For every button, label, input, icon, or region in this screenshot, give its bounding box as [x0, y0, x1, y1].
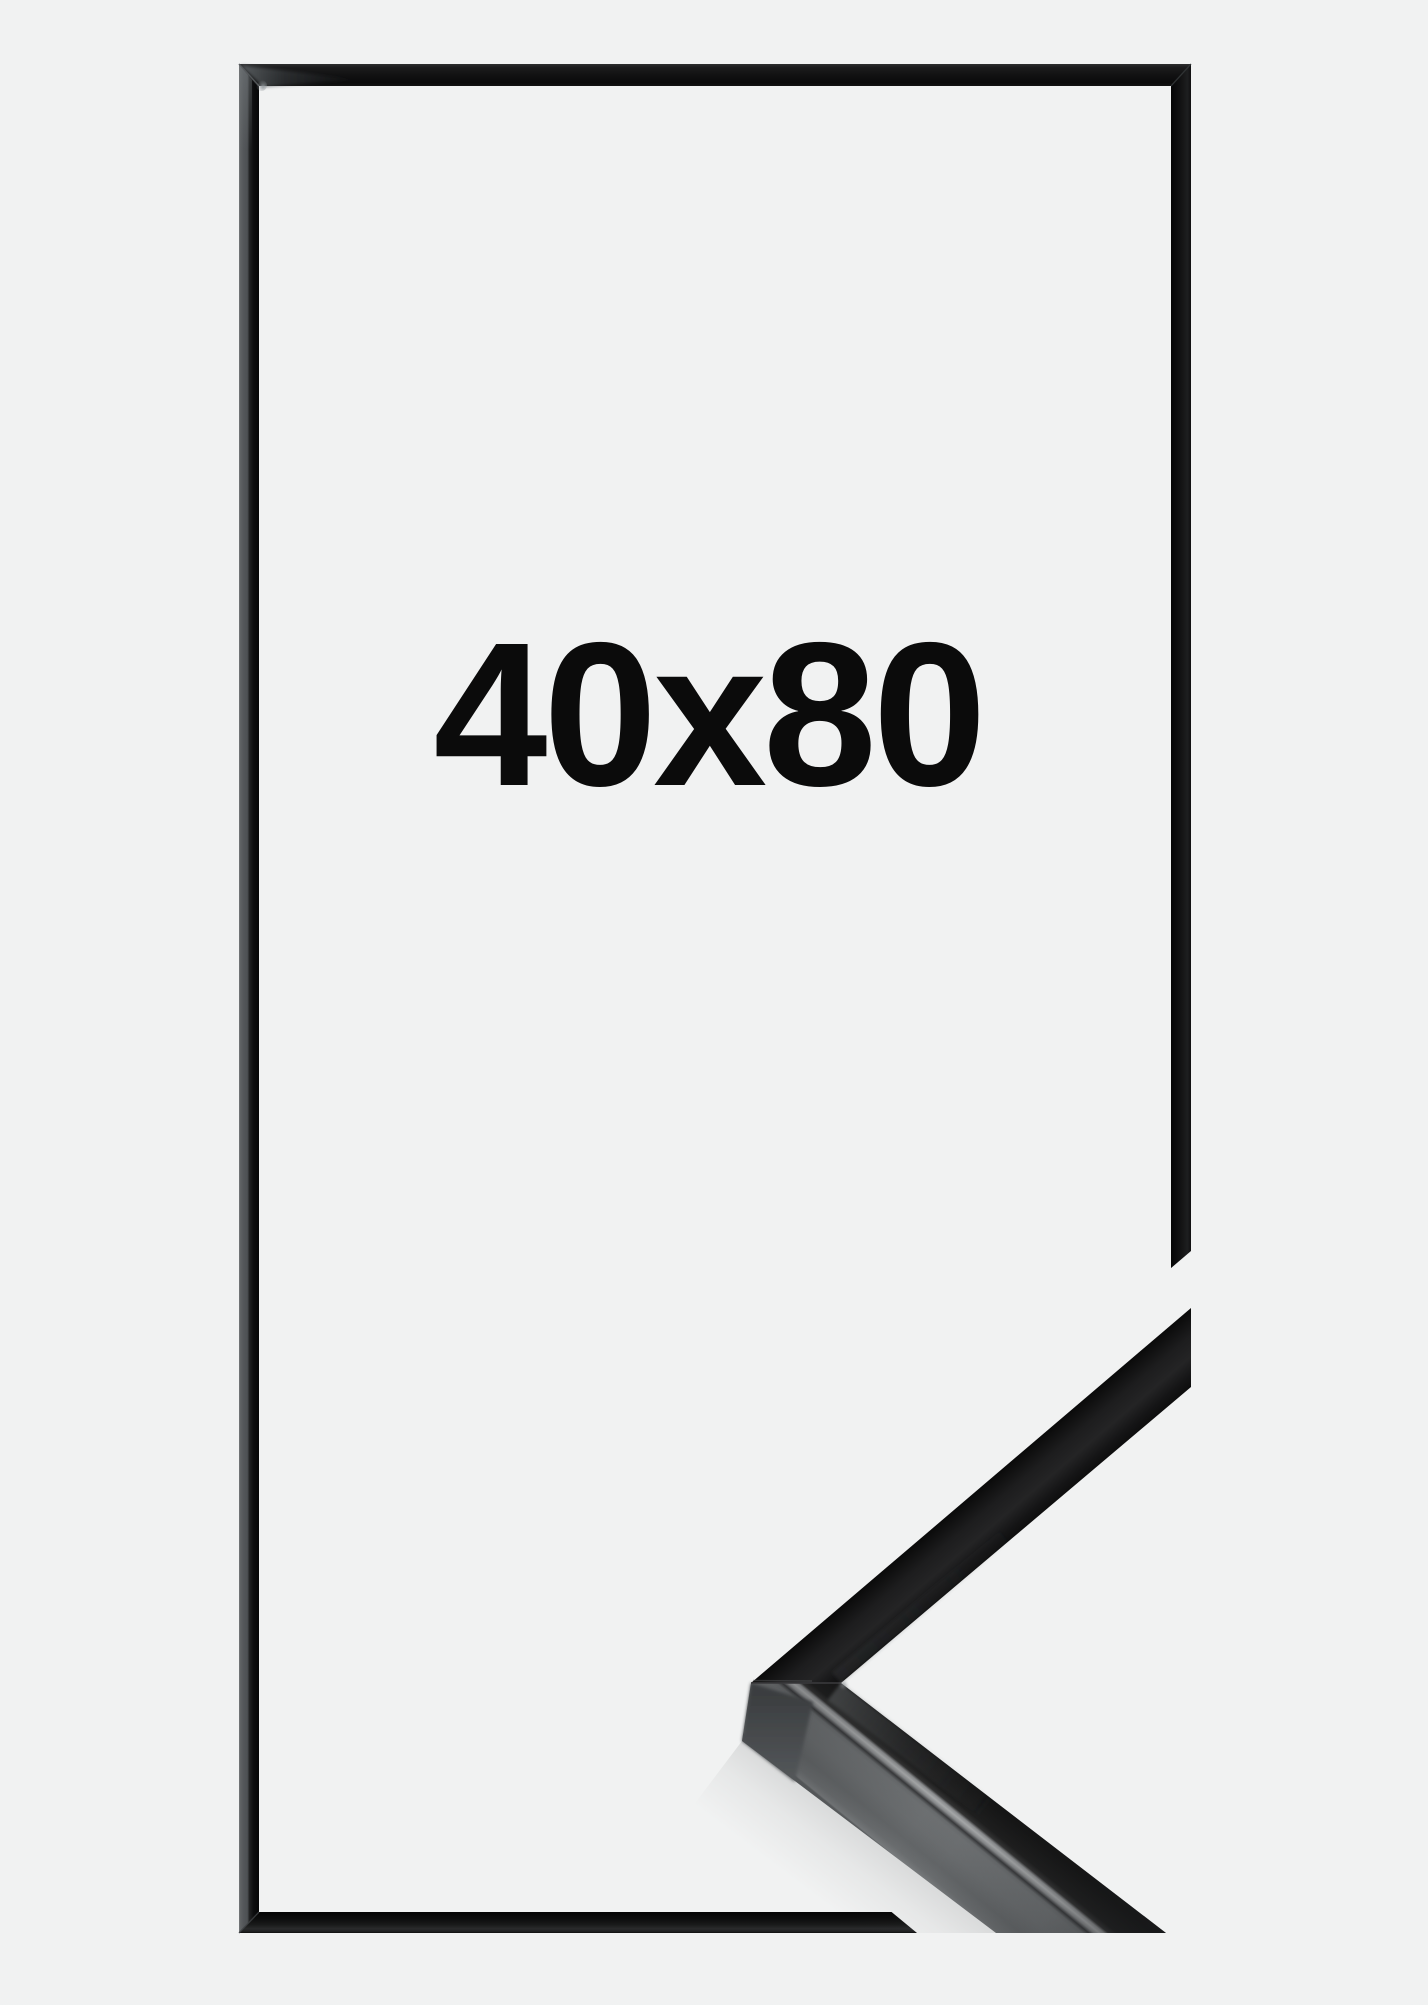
svg-text:40x80: 40x80 [433, 600, 982, 829]
